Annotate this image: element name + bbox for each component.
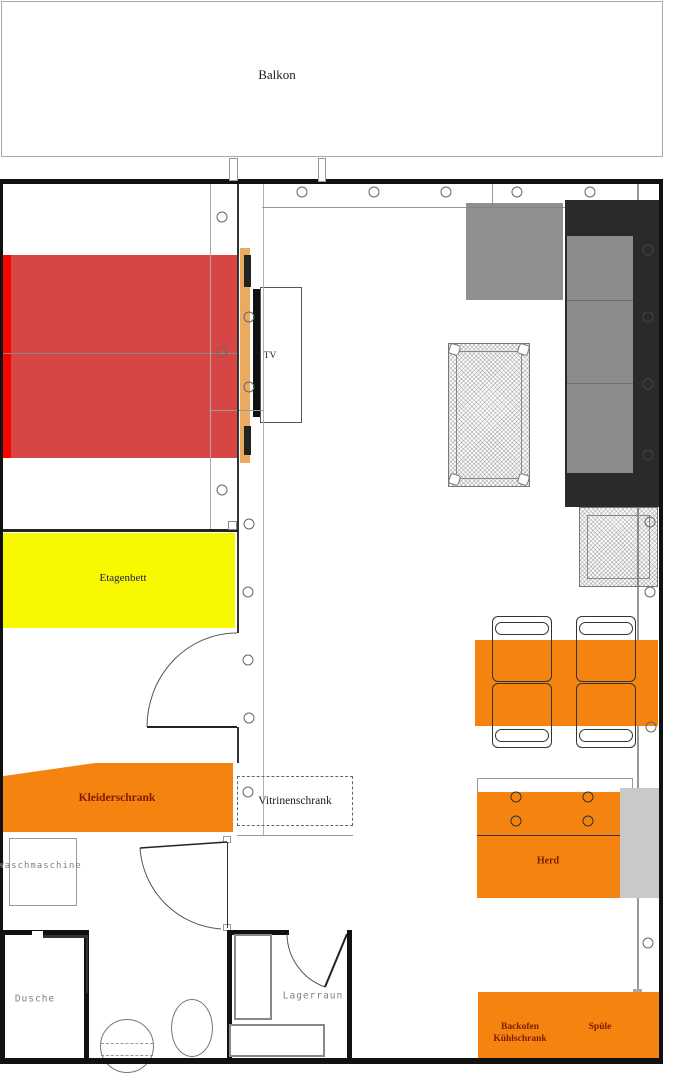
stove	[477, 792, 620, 898]
coffee-table-inner	[456, 351, 522, 479]
partition-line-a	[210, 183, 211, 530]
washing-machine-label: Waschmaschine	[0, 861, 82, 871]
fridge-label: Kühlschrank	[493, 1034, 546, 1044]
hall-stool	[100, 1019, 154, 1073]
chair	[492, 683, 552, 748]
washing-machine	[9, 838, 77, 906]
partition-line-b	[263, 183, 265, 835]
bed-headboard-strip	[3, 255, 11, 458]
storage-shelf-vertical	[234, 934, 272, 1020]
display-cabinet-label: Vitrinenschrank	[258, 795, 331, 807]
sofa-seat-divider-1	[567, 300, 633, 301]
fridge-block	[620, 788, 660, 898]
shower-glass-top	[43, 935, 88, 938]
stove-label: Herd	[537, 856, 559, 867]
wall-notch	[228, 521, 237, 530]
balcony-label: Balkon	[258, 67, 296, 83]
tv-label: TV	[264, 351, 277, 361]
shower-label: Dusche	[15, 994, 55, 1005]
balcony-door-tab-2	[318, 158, 326, 182]
wardrobe-label: Kleiderschrank	[79, 792, 156, 804]
sofa-seat-divider-2	[567, 383, 633, 384]
chair	[492, 616, 552, 682]
tv-bracket-top	[244, 255, 251, 287]
stool-dash-1	[101, 1043, 153, 1044]
balcony-room	[1, 1, 663, 157]
storage-door	[286, 931, 352, 991]
cabinet-base-line	[237, 835, 353, 836]
balcony-door-tab-1	[229, 158, 238, 181]
chair	[576, 683, 636, 748]
side-table-inner	[587, 515, 650, 579]
bedroom-wall	[237, 183, 239, 633]
outer-wall-top	[0, 179, 663, 184]
stove-divider	[477, 835, 620, 837]
tv-screen	[253, 289, 260, 417]
sink-label: Spüle	[589, 1022, 612, 1032]
storage-shelf-horizontal	[229, 1024, 325, 1057]
bedroom-bottom-wall	[0, 529, 238, 532]
shower-door-gap	[32, 931, 43, 936]
bunk-bed-label: Etagenbett	[99, 572, 146, 584]
sofa-chaise	[466, 203, 563, 300]
hall-door	[139, 841, 231, 931]
chair	[576, 616, 636, 682]
stool-dash-2	[101, 1055, 153, 1056]
storage-label: Lagerraun	[283, 991, 343, 1002]
sofa-seat	[567, 236, 633, 473]
bed-mid-line	[0, 353, 237, 354]
shower-glass-side	[86, 935, 89, 993]
outer-wall-bottom	[0, 1058, 663, 1064]
oven-label: Backofen	[501, 1022, 539, 1032]
tv-bracket-bottom	[244, 426, 251, 455]
hall-basin	[171, 999, 213, 1057]
outer-wall-left	[0, 179, 3, 1064]
floor-plan: Balkon TV Etagenbett Kleiderschrank Vitr…	[0, 0, 682, 1080]
bedroom-wall-lower	[237, 727, 239, 763]
outer-wall-right	[659, 179, 664, 1064]
double-bed	[11, 255, 237, 458]
bedroom-door	[146, 632, 238, 728]
